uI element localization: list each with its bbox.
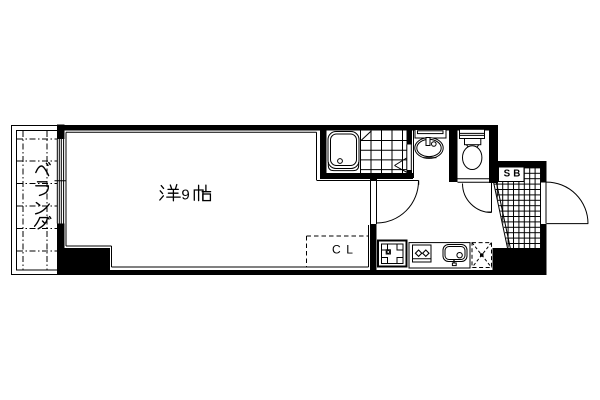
svg-text:9: 9 — [181, 186, 189, 203]
svg-text:S: S — [504, 168, 511, 179]
svg-text:B: B — [513, 168, 520, 179]
svg-text:L: L — [346, 243, 353, 257]
svg-text:C: C — [332, 243, 341, 257]
